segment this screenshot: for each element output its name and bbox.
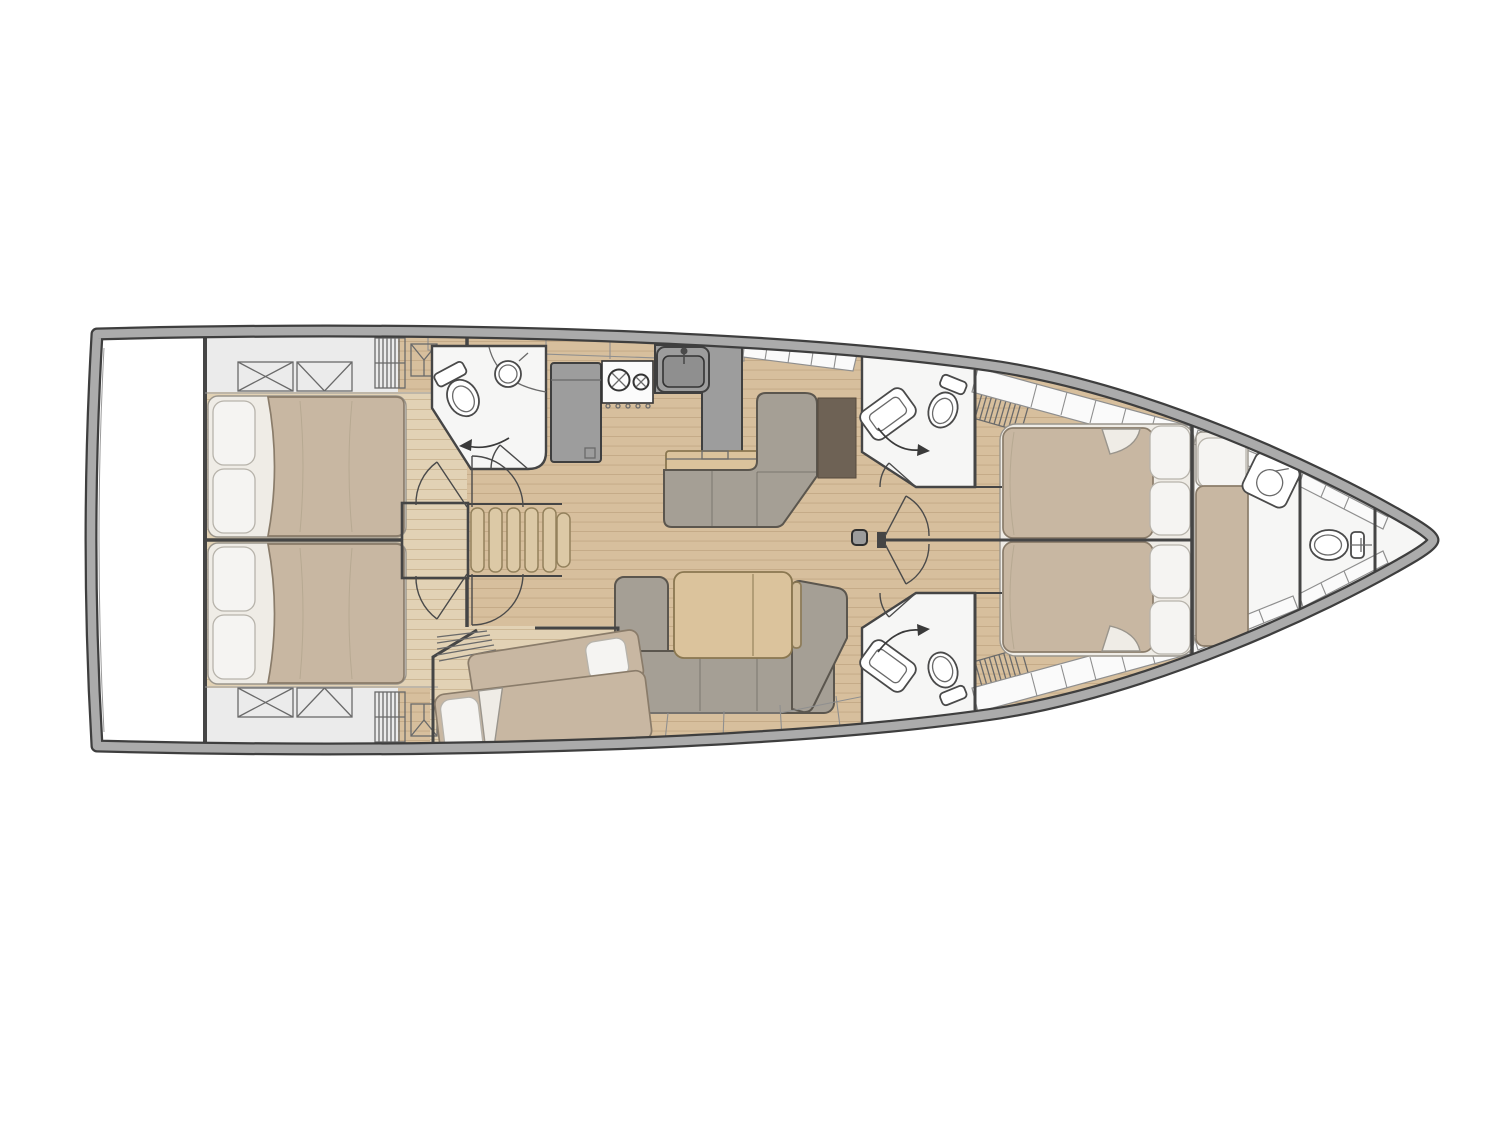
sink-icon	[657, 347, 709, 392]
stove-icon	[602, 361, 653, 408]
mast-post-icon	[852, 530, 867, 545]
bow-head	[1310, 530, 1372, 560]
aft-cabin-starboard-bed	[208, 543, 406, 684]
salon-dinette	[615, 572, 847, 713]
sideboard-panel	[818, 398, 856, 478]
swim-platform	[91, 334, 205, 746]
crew-berth	[1196, 486, 1248, 646]
salon-table	[674, 572, 792, 658]
floorplan-canvas	[0, 0, 1502, 1126]
yacht-floorplan	[0, 0, 1502, 1126]
fridge-icon	[551, 363, 601, 462]
companionway-stairs	[468, 504, 570, 576]
aft-cabin-port-bed	[208, 396, 406, 537]
